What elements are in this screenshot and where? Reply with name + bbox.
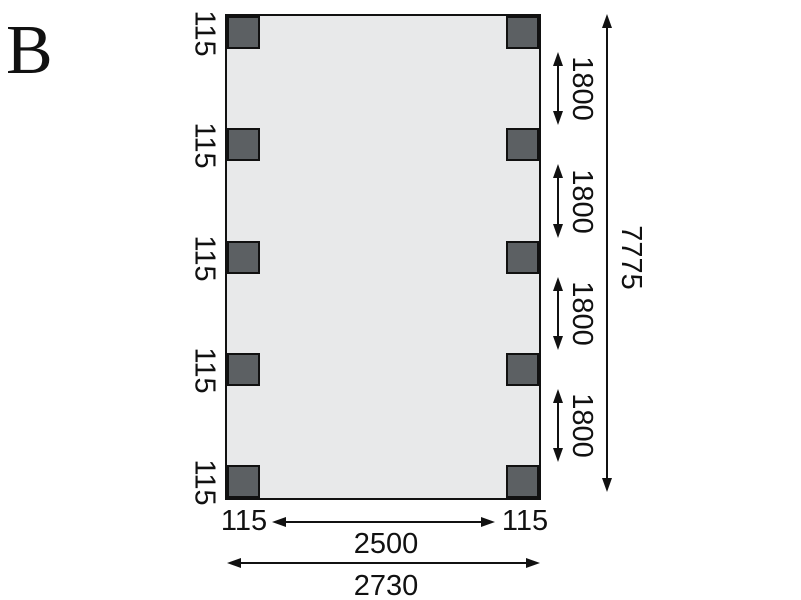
post [227,353,260,386]
arrowhead-down-icon [602,478,612,492]
gap-dimension-label-text: 1800 [567,56,596,121]
width-dimension-arrow [227,557,540,569]
bottom-right-post-label: 115 [490,504,560,538]
inner-span-label: 2500 [326,527,446,561]
post-size-label-text: 115 [190,459,219,505]
arrowhead-left-icon [272,517,286,527]
overall-width-label: 2730 [326,569,446,600]
arrow-shaft [232,562,535,564]
post-size-label-text: 115 [190,10,219,56]
bottom-right-post-label-text: 115 [502,507,548,536]
gap-dimension-label: 1800 [561,33,601,143]
post-size-label-text: 115 [190,122,219,168]
post [506,16,539,49]
post [506,128,539,161]
plan-outline [225,14,541,500]
overall-height-label-text: 7775 [616,225,645,290]
gap-dimension-label: 1800 [561,146,601,256]
post [227,241,260,274]
gap-dimension-label-text: 1800 [567,281,596,346]
overall-width-label-text: 2730 [354,572,419,600]
post [506,353,539,386]
arrowhead-left-icon [227,558,241,568]
arrow-shaft [606,19,608,487]
post [506,465,539,498]
post-size-label: 115 [184,222,224,294]
post [227,16,260,49]
post-size-label-text: 115 [190,235,219,281]
post [227,128,260,161]
gap-dimension-label: 1800 [561,258,601,368]
bottom-left-post-label-text: 115 [221,507,267,536]
post-size-label: 115 [184,334,224,406]
gap-dimension-label-text: 1800 [567,169,596,234]
arrow-shaft [277,521,490,523]
post [227,465,260,498]
arrowhead-up-icon [602,14,612,28]
post-size-label: 115 [184,0,224,69]
gap-dimension-label-text: 1800 [567,393,596,458]
arrowhead-right-icon [526,558,540,568]
post-size-label: 115 [184,109,224,181]
view-label: B [6,16,53,86]
post [506,241,539,274]
overall-height-label: 7775 [610,187,650,327]
gap-dimension-label: 1800 [561,370,601,480]
inner-span-label-text: 2500 [354,530,419,559]
post-size-label-text: 115 [190,347,219,393]
bottom-left-post-label: 115 [209,504,279,538]
dimension-diagram: B 115 115 115 115 115 1800 180 [0,0,801,600]
